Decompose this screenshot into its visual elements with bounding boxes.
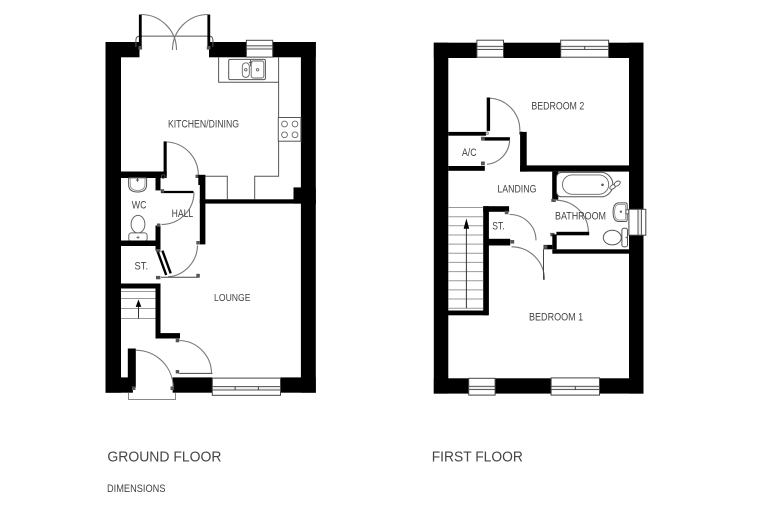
svg-text:BEDROOM 1: BEDROOM 1	[529, 311, 583, 323]
svg-text:A/C: A/C	[462, 147, 477, 159]
svg-text:KITCHEN/DINING: KITCHEN/DINING	[168, 119, 239, 131]
svg-text:LANDING: LANDING	[497, 183, 536, 195]
svg-text:BATHROOM: BATHROOM	[555, 211, 606, 223]
svg-text:WC: WC	[132, 200, 147, 212]
svg-text:ST.: ST.	[135, 261, 149, 273]
svg-text:HALL: HALL	[172, 208, 194, 220]
svg-text:DIMENSIONS: DIMENSIONS	[107, 483, 166, 495]
svg-text:FIRST FLOOR: FIRST FLOOR	[432, 449, 523, 466]
svg-text:ST.: ST.	[492, 221, 504, 233]
svg-text:BEDROOM 2: BEDROOM 2	[531, 101, 584, 113]
svg-text:GROUND FLOOR: GROUND FLOOR	[107, 449, 221, 466]
svg-text:LOUNGE: LOUNGE	[214, 293, 251, 304]
